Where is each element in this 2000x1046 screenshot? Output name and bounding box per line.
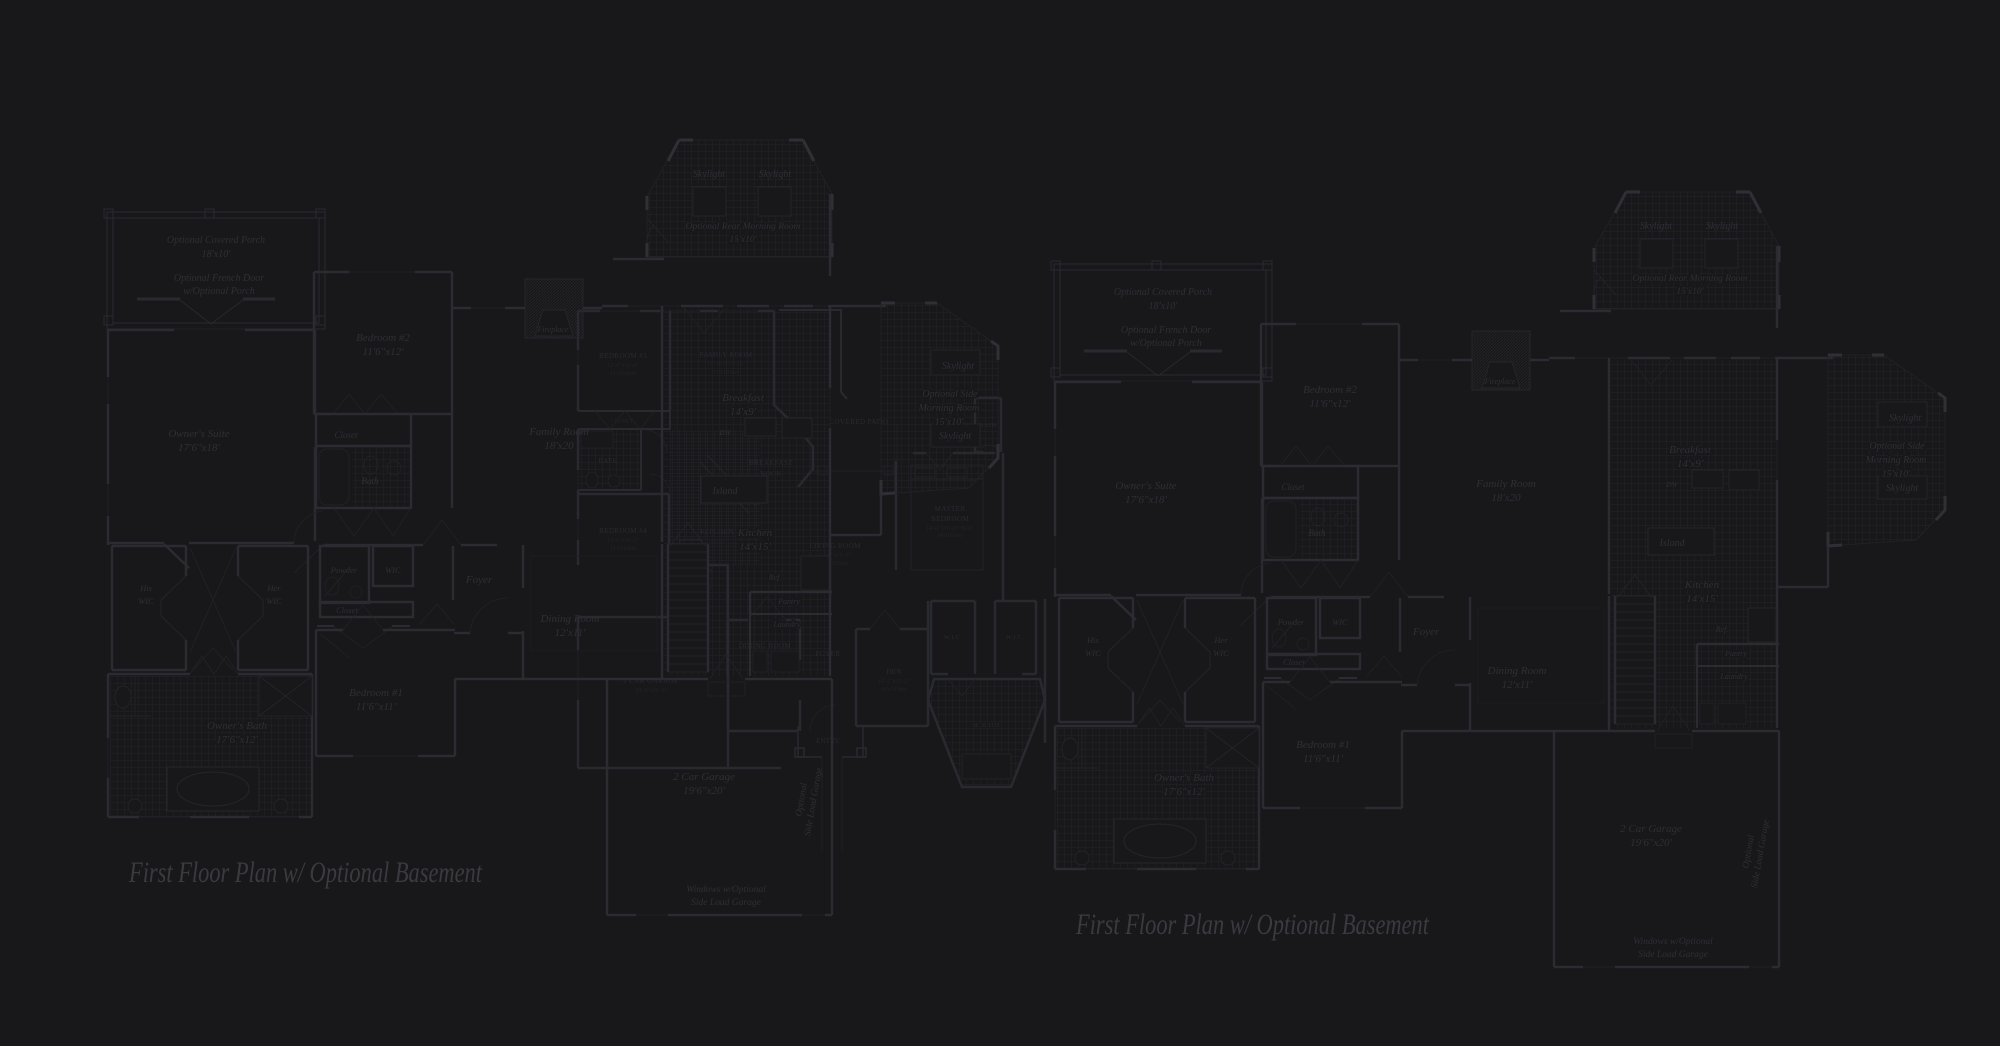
svg-text:BEDROOM #4: BEDROOM #4 xyxy=(599,527,647,535)
svg-text:12'-0"x11'-2": 12'-0"x11'-2" xyxy=(607,538,639,544)
svg-text:12'-4"x10'-0": 12'-4"x10'-0" xyxy=(607,363,640,369)
svg-text:BEDROOM: BEDROOM xyxy=(931,515,969,523)
svg-text:M. BATH: M. BATH xyxy=(972,722,999,729)
svg-text:ENTRY: ENTRY xyxy=(816,738,840,745)
svg-text:W.I.C.: W.I.C. xyxy=(1006,634,1024,641)
svg-text:11'x10'min: 11'x10'min xyxy=(610,371,636,377)
svg-text:20'-0"x20'-0": 20'-0"x20'-0" xyxy=(635,688,668,694)
svg-text:DEN: DEN xyxy=(886,668,902,676)
svg-text:W.I.C.: W.I.C. xyxy=(944,634,962,641)
svg-text:14'x16'min: 14'x16'min xyxy=(937,533,964,539)
svg-text:11'x11'min: 11'x11'min xyxy=(610,546,636,552)
svg-text:BEDROOM #3: BEDROOM #3 xyxy=(599,352,647,360)
svg-text:BATH: BATH xyxy=(599,458,618,465)
svg-text:COVERED PATIO: COVERED PATIO xyxy=(829,418,888,426)
svg-text:10'-2"x11'-2": 10'-2"x11'-2" xyxy=(878,679,910,685)
svg-text:CLOSET: CLOSET xyxy=(611,419,634,425)
svg-text:MASTER: MASTER xyxy=(935,505,966,513)
svg-text:14'-0"x16'-0"+BAY: 14'-0"x16'-0"+BAY xyxy=(926,526,974,532)
svg-text:10'x11'min: 10'x11'min xyxy=(881,687,907,693)
